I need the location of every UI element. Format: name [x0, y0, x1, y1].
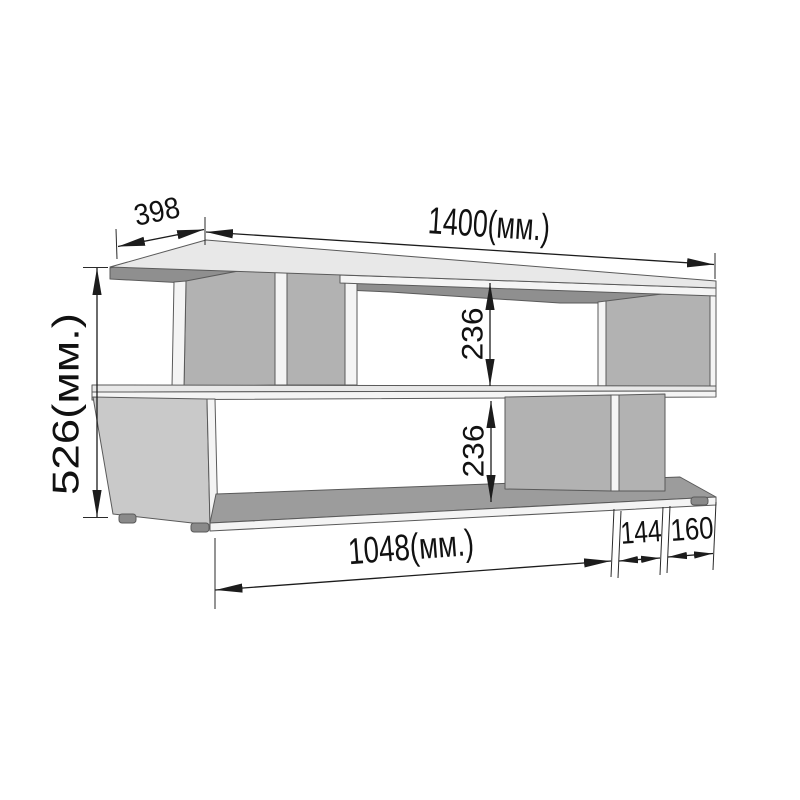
right-inner-label: 144 [619, 513, 662, 551]
upper-right-divider-front-edge [598, 301, 606, 388]
lower-right-end-divider-face [619, 394, 665, 491]
lower-left-panel-face [93, 397, 210, 525]
width-label: 1400(мм.) [427, 200, 551, 250]
upper-left-panel-front-edge [172, 281, 186, 387]
shelf-unit [92, 240, 716, 532]
depth-ext-line-left [116, 229, 117, 259]
upper-mid-divider-side-face [287, 261, 345, 385]
upper-right-compartment-interior [606, 288, 710, 388]
bottom-shelf-ext-line-right [611, 509, 614, 577]
upper-opening-label: 236 [457, 308, 490, 361]
bottom-shelf-label: 1048(мм.) [347, 522, 476, 572]
left-foot [119, 514, 136, 523]
shelf-dimension-diagram: 398 1400(мм.) 526(мм.) 236 236 1048(мм.)… [0, 0, 800, 800]
lower-right-divider-side-face [505, 395, 611, 491]
upper-mid-divider-front-edge [275, 264, 287, 385]
right-outer-dim-line [668, 554, 713, 558]
upper-left-panel-side-face [184, 264, 275, 387]
right-outer-label: 160 [669, 510, 714, 548]
lower-opening-label: 236 [458, 425, 491, 478]
right-end-panel-front-edge [710, 288, 716, 392]
drawing-canvas: 398 1400(мм.) 526(мм.) 236 236 1048(мм.)… [0, 0, 800, 800]
left-inner-foot [191, 523, 209, 532]
height-label: 526(мм.) [46, 313, 87, 495]
right-foot [691, 497, 708, 505]
right-inner-dim-line [619, 558, 660, 561]
lower-right-divider-front-edge [611, 395, 619, 491]
depth-label: 398 [131, 191, 183, 233]
